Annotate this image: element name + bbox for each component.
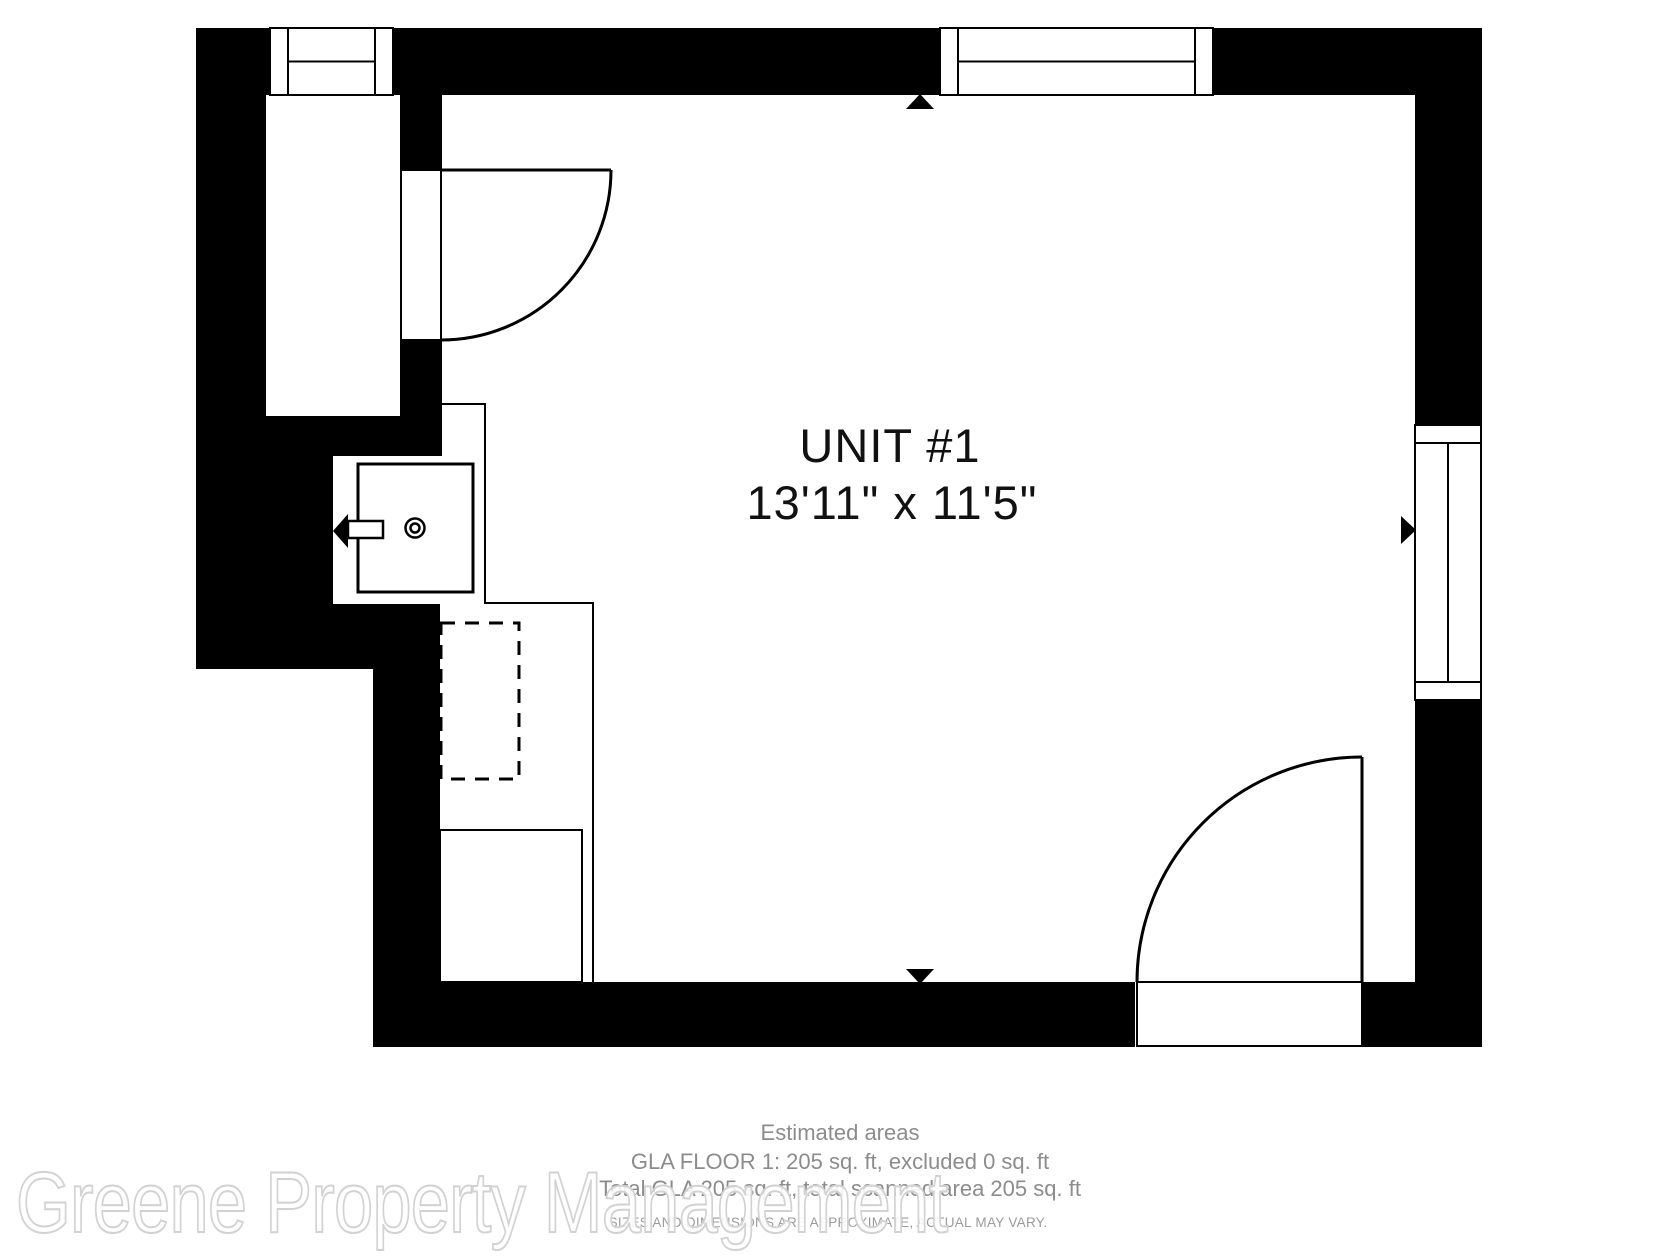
counter [440,830,582,982]
wall-left-lower [373,669,440,982]
wall-left-upper [196,95,266,416]
floor-plan-page: UNIT #1 13'11" x 11'5" Estimated areas G… [0,0,1680,1260]
door-swing-arc [1137,757,1362,982]
sink-faucet-stem [348,521,383,538]
door-top-left [401,170,611,340]
gla-floor-line: GLA FLOOR 1: 205 sq. ft, excluded 0 sq. … [631,1149,1049,1175]
door-threshold [1137,982,1362,1046]
wall-below-sink-nook [196,604,440,669]
floor-plan-drawing [0,0,1680,1260]
sink-faucet-arrow [333,514,348,548]
arrow-top [906,94,934,109]
wall-bottom-left [373,982,1135,1047]
wall-bottom-right [1362,982,1482,1047]
sink-drain-inner [411,524,420,533]
sink [333,464,473,592]
window-right [1415,425,1481,700]
door-opening [401,170,441,340]
unit-dimensions: 13'11" x 11'5" [747,475,1038,530]
wall-left-of-sink [196,456,333,604]
unit-label: UNIT #1 [799,418,980,473]
door-swing-arc [441,170,611,340]
arrow-bottom [906,969,934,984]
direction-arrows [906,94,1416,984]
arrow-right [1401,516,1416,544]
total-gla-line: Total GLA 205 sq. ft, total scanned area… [599,1176,1081,1202]
dashed-appliance [441,623,519,779]
window-top-left [270,28,393,95]
estimated-areas-heading: Estimated areas [761,1120,920,1146]
window-top-right [940,28,1213,95]
disclaimer-text: SIZES AND DIMENSIONS ARE APPROXIMATE, AC… [609,1215,1048,1230]
door-bottom-right [1137,757,1362,1046]
